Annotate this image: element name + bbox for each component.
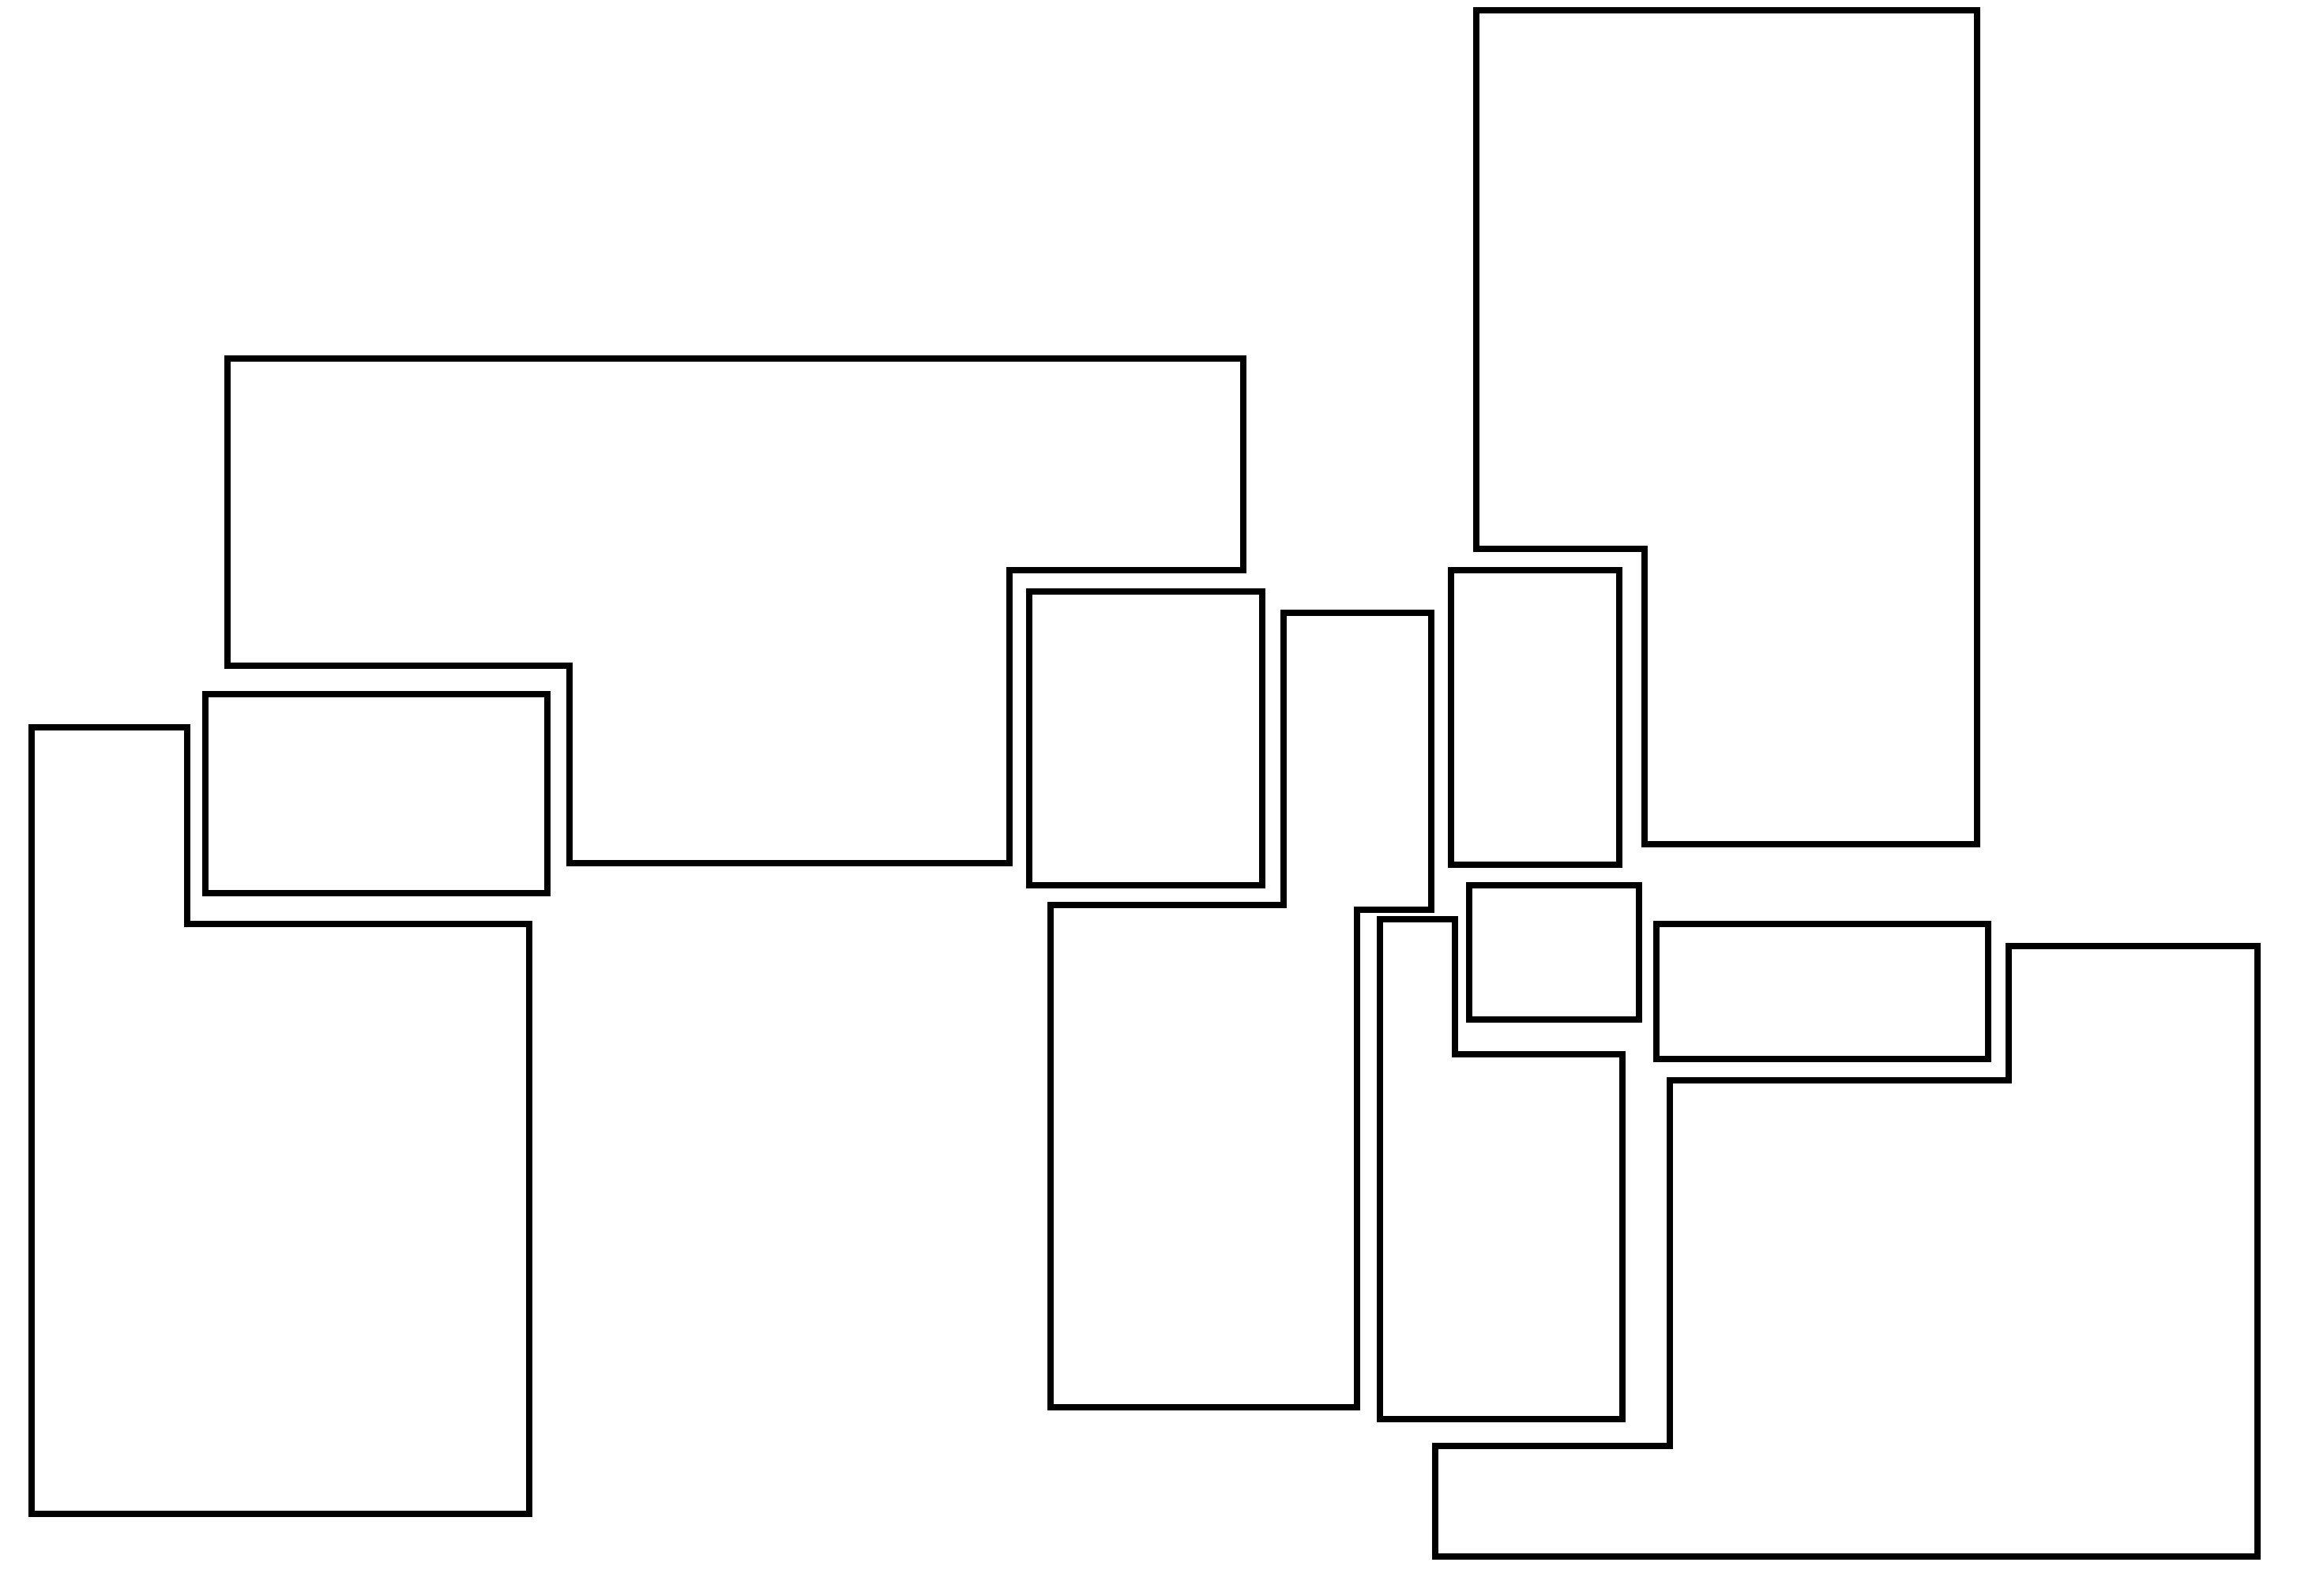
shape-center-tall-rect — [1029, 591, 1262, 885]
shape-left-small-rect — [205, 694, 547, 893]
shape-right-wide-rect — [1656, 924, 1988, 1059]
shape-upper-right-small-rect — [1451, 570, 1619, 865]
shape-small-center-rect — [1469, 885, 1639, 1020]
shapes-svg — [0, 0, 2312, 1596]
drawing-canvas — [0, 0, 2312, 1596]
